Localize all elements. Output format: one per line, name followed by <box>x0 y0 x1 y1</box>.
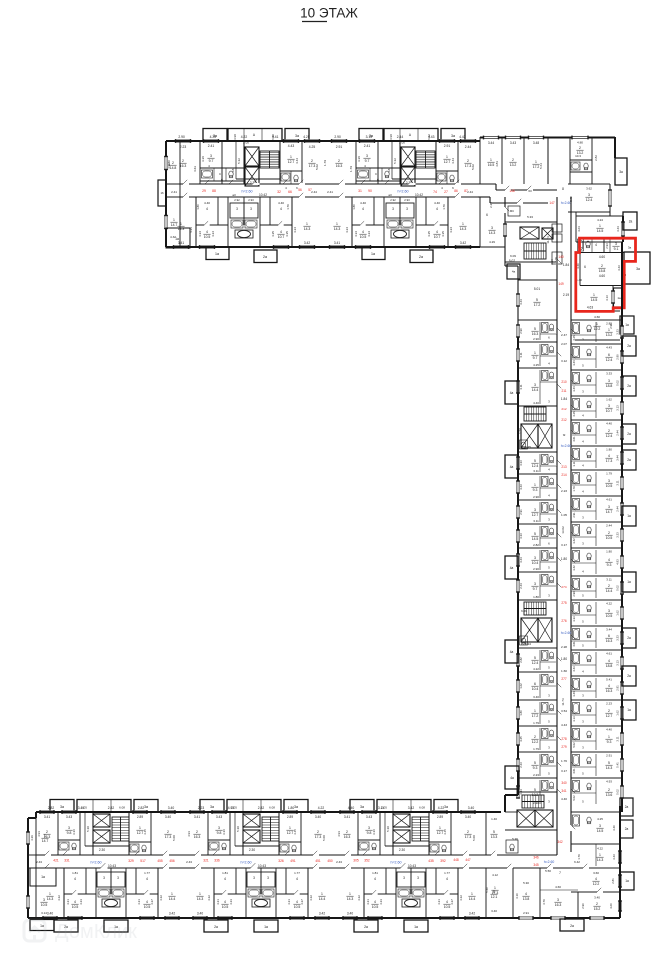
svg-text:12.2: 12.2 <box>594 327 601 331</box>
svg-text:2.91: 2.91 <box>444 144 451 148</box>
svg-text:14.3: 14.3 <box>489 231 496 235</box>
svg-text:3.36: 3.36 <box>372 829 376 835</box>
svg-text:9.3: 9.3 <box>533 488 538 492</box>
svg-text:2: 2 <box>467 159 469 163</box>
svg-text:1: 1 <box>289 826 291 830</box>
svg-text:2.44: 2.44 <box>606 524 612 528</box>
svg-text:1а: 1а <box>215 252 219 256</box>
svg-text:4: 4 <box>224 877 226 881</box>
svg-text:3: 3 <box>267 876 269 880</box>
svg-text:2: 2 <box>182 159 184 163</box>
svg-text:2.23: 2.23 <box>533 773 539 777</box>
svg-text:3.40: 3.40 <box>197 912 203 916</box>
svg-text:2.89: 2.89 <box>287 815 293 819</box>
svg-text:1: 1 <box>336 222 338 226</box>
svg-text:2.92: 2.92 <box>234 198 240 202</box>
svg-text:4.93: 4.93 <box>187 831 191 837</box>
svg-text:2а: 2а <box>627 458 631 462</box>
svg-text:4.40: 4.40 <box>204 201 210 205</box>
svg-text:4.45: 4.45 <box>443 829 447 835</box>
svg-text:2.91: 2.91 <box>606 754 612 758</box>
svg-text:4а: 4а <box>510 650 514 654</box>
svg-text:4.45: 4.45 <box>293 829 297 835</box>
svg-text:4.93: 4.93 <box>616 559 620 565</box>
svg-text:4.93: 4.93 <box>337 831 341 837</box>
svg-text:210: 210 <box>561 380 567 384</box>
svg-text:4.93: 4.93 <box>228 806 235 810</box>
svg-text:1: 1 <box>596 322 598 326</box>
svg-text:5: 5 <box>534 532 536 536</box>
svg-text:3: 3 <box>366 154 368 158</box>
svg-text:9.7: 9.7 <box>533 587 538 591</box>
svg-text:2а: 2а <box>627 636 631 640</box>
svg-text:6: 6 <box>377 178 379 182</box>
svg-text:3.44: 3.44 <box>572 360 576 366</box>
svg-text:16.3: 16.3 <box>336 164 343 168</box>
svg-text:14.5: 14.5 <box>532 537 539 541</box>
svg-text:4: 4 <box>446 900 448 904</box>
svg-text:4.34: 4.34 <box>354 231 358 237</box>
svg-text:3а: 3а <box>144 805 148 809</box>
svg-text:5.41: 5.41 <box>272 135 279 139</box>
svg-text:4.40: 4.40 <box>561 797 567 801</box>
svg-text:29: 29 <box>202 189 206 193</box>
svg-text:2.47: 2.47 <box>561 333 567 337</box>
svg-text:2.90: 2.90 <box>616 354 620 360</box>
svg-text:17.2: 17.2 <box>532 714 539 718</box>
svg-text:2.16: 2.16 <box>550 259 554 265</box>
svg-text:4.22: 4.22 <box>309 895 313 901</box>
svg-text:h=2.60: h=2.60 <box>390 861 401 865</box>
svg-text:1.79: 1.79 <box>286 204 290 210</box>
svg-text:4: 4 <box>146 900 148 904</box>
svg-text:3: 3 <box>534 508 536 512</box>
svg-text:4: 4 <box>280 230 282 234</box>
svg-text:16.3: 16.3 <box>532 332 539 336</box>
svg-text:2.44: 2.44 <box>467 190 473 194</box>
svg-text:5.40: 5.40 <box>485 887 489 893</box>
svg-text:3.42: 3.42 <box>460 241 466 245</box>
svg-text:1: 1 <box>535 160 537 164</box>
svg-text:1: 1 <box>171 892 173 896</box>
svg-text:3.42: 3.42 <box>469 912 475 916</box>
svg-text:2.44: 2.44 <box>616 506 620 512</box>
svg-text:455: 455 <box>157 859 163 863</box>
svg-text:12.1: 12.1 <box>491 895 498 899</box>
svg-text:3.33: 3.33 <box>616 329 620 335</box>
svg-text:3: 3 <box>534 383 536 387</box>
svg-text:3.11: 3.11 <box>606 578 612 582</box>
svg-text:2: 2 <box>596 902 598 906</box>
svg-text:3: 3 <box>608 505 610 509</box>
svg-text:4.60: 4.60 <box>599 274 605 278</box>
svg-text:4.25: 4.25 <box>427 231 431 237</box>
svg-text:2.41: 2.41 <box>171 190 177 194</box>
svg-text:1.80: 1.80 <box>196 204 200 210</box>
svg-text:3.44: 3.44 <box>488 141 494 145</box>
svg-text:4.61: 4.61 <box>606 498 612 502</box>
svg-text:5: 5 <box>536 298 538 302</box>
svg-text:4.22: 4.22 <box>318 806 325 810</box>
svg-text:4: 4 <box>362 207 364 211</box>
svg-text:1а: 1а <box>371 252 375 256</box>
svg-text:276: 276 <box>561 619 567 623</box>
svg-text:4.61: 4.61 <box>193 166 197 172</box>
svg-text:10.4: 10.4 <box>532 561 539 565</box>
svg-text:5.41: 5.41 <box>616 762 620 768</box>
svg-text:4.93: 4.93 <box>606 780 612 784</box>
svg-text:3: 3 <box>218 826 220 830</box>
svg-text:5.34: 5.34 <box>525 642 531 646</box>
svg-text:3.44: 3.44 <box>616 455 620 461</box>
svg-text:3.41: 3.41 <box>334 241 340 245</box>
svg-text:10.43: 10.43 <box>258 864 266 868</box>
svg-text:2: 2 <box>608 531 610 535</box>
svg-text:14.7: 14.7 <box>42 839 49 843</box>
svg-text:1.60: 1.60 <box>561 669 567 673</box>
svg-text:2а: 2а <box>627 344 631 348</box>
svg-text:3.11: 3.11 <box>572 461 576 467</box>
svg-text:5.32: 5.32 <box>393 158 397 164</box>
svg-text:3.79: 3.79 <box>542 899 546 905</box>
svg-text:4: 4 <box>595 877 597 881</box>
svg-text:4.24: 4.24 <box>293 227 297 233</box>
svg-text:18.8: 18.8 <box>606 384 613 388</box>
svg-text:1.79: 1.79 <box>533 721 539 725</box>
svg-text:4.34: 4.34 <box>198 231 202 237</box>
svg-text:4.40: 4.40 <box>360 201 366 205</box>
svg-text:10.7: 10.7 <box>434 235 441 239</box>
svg-text:4: 4 <box>74 877 76 881</box>
svg-text:2.28: 2.28 <box>561 645 567 649</box>
svg-text:2.19: 2.19 <box>563 293 569 297</box>
svg-text:5: 5 <box>534 656 536 660</box>
svg-text:2.82: 2.82 <box>606 322 612 326</box>
svg-text:10.5: 10.5 <box>204 235 211 239</box>
svg-text:342: 342 <box>557 840 563 844</box>
svg-text:4.23: 4.23 <box>379 899 383 905</box>
svg-text:4.22: 4.22 <box>597 847 603 851</box>
svg-text:2.91: 2.91 <box>572 512 576 518</box>
svg-text:1: 1 <box>306 222 308 226</box>
svg-text:4а: 4а <box>510 776 514 780</box>
svg-text:9.7: 9.7 <box>533 356 538 360</box>
svg-text:16.5: 16.5 <box>488 163 495 167</box>
svg-text:4: 4 <box>146 877 148 881</box>
svg-text:3.40: 3.40 <box>468 806 475 810</box>
svg-text:12.2: 12.2 <box>532 740 539 744</box>
svg-text:4: 4 <box>280 207 282 211</box>
svg-text:2а: 2а <box>627 674 631 678</box>
svg-text:4.44: 4.44 <box>295 158 299 164</box>
svg-text:2а: 2а <box>627 432 631 436</box>
svg-text:12.4: 12.4 <box>606 358 613 362</box>
svg-text:4.61: 4.61 <box>572 436 576 442</box>
svg-text:3.12: 3.12 <box>561 359 567 363</box>
svg-text:4.23: 4.23 <box>229 899 233 905</box>
svg-text:2.90: 2.90 <box>572 591 576 597</box>
svg-text:6.08: 6.08 <box>269 806 275 810</box>
svg-text:3.41: 3.41 <box>44 815 50 819</box>
svg-text:2.89: 2.89 <box>137 815 143 819</box>
svg-text:147: 147 <box>549 201 555 205</box>
svg-text:336: 336 <box>214 859 220 863</box>
svg-text:10.5: 10.5 <box>41 903 48 907</box>
svg-text:1: 1 <box>173 218 175 222</box>
svg-text:h=2.60: h=2.60 <box>241 190 252 194</box>
svg-text:16.3: 16.3 <box>555 903 562 907</box>
svg-text:4.25: 4.25 <box>572 411 576 417</box>
svg-text:1.62: 1.62 <box>616 710 620 716</box>
svg-text:6: 6 <box>486 213 488 217</box>
svg-text:5.32: 5.32 <box>237 158 241 164</box>
svg-text:5.00: 5.00 <box>172 835 176 841</box>
svg-text:3.13: 3.13 <box>366 135 373 139</box>
svg-text:352: 352 <box>364 859 370 863</box>
svg-text:13.2: 13.2 <box>606 333 613 337</box>
svg-text:5: 5 <box>534 761 536 765</box>
svg-text:2а: 2а <box>570 924 574 928</box>
svg-text:3.33: 3.33 <box>606 372 612 376</box>
svg-text:3: 3 <box>608 404 610 408</box>
svg-text:4.22: 4.22 <box>207 895 211 901</box>
svg-text:3: 3 <box>608 609 610 613</box>
svg-text:12.2: 12.2 <box>593 882 600 886</box>
svg-text:1.62: 1.62 <box>616 610 620 616</box>
svg-text:3.17: 3.17 <box>561 769 567 773</box>
svg-text:2.91: 2.91 <box>523 911 529 915</box>
svg-text:14.5: 14.5 <box>597 829 604 833</box>
svg-text:2.82: 2.82 <box>108 806 115 810</box>
svg-text:3.41: 3.41 <box>194 815 200 819</box>
svg-text:h=2.60: h=2.60 <box>561 444 572 448</box>
svg-text:3.40: 3.40 <box>47 912 53 916</box>
svg-text:6.08: 6.08 <box>119 806 125 810</box>
svg-text:2.90: 2.90 <box>178 135 185 139</box>
svg-text:3.41: 3.41 <box>344 815 350 819</box>
svg-text:4.24: 4.24 <box>367 231 371 237</box>
svg-text:2: 2 <box>601 264 603 268</box>
svg-text:3.90: 3.90 <box>389 134 393 140</box>
svg-text:32: 32 <box>277 190 281 194</box>
svg-text:2.90: 2.90 <box>581 903 585 909</box>
svg-text:3.11: 3.11 <box>533 469 539 473</box>
svg-text:3.40: 3.40 <box>491 909 497 913</box>
svg-text:4.61: 4.61 <box>572 768 576 774</box>
svg-text:5.01: 5.01 <box>534 287 540 291</box>
svg-text:3.33: 3.33 <box>616 532 620 538</box>
svg-text:1: 1 <box>599 224 601 228</box>
svg-text:274: 274 <box>561 585 566 589</box>
svg-text:5.64: 5.64 <box>539 163 543 169</box>
svg-text:14.3: 14.3 <box>334 227 341 231</box>
svg-text:14.3: 14.3 <box>304 227 311 231</box>
svg-text:14.5: 14.5 <box>591 298 598 302</box>
svg-text:14.4: 14.4 <box>469 897 476 901</box>
svg-text:6: 6 <box>608 634 610 638</box>
svg-text:2.93: 2.93 <box>404 198 410 202</box>
svg-text:4: 4 <box>206 207 208 211</box>
svg-text:10.5: 10.5 <box>360 235 367 239</box>
svg-text:2.82: 2.82 <box>533 543 539 547</box>
svg-text:491: 491 <box>290 859 296 863</box>
svg-text:3.43: 3.43 <box>510 141 516 145</box>
svg-text:3.36: 3.36 <box>222 829 226 835</box>
svg-text:С: С <box>375 172 377 176</box>
svg-text:13.6: 13.6 <box>606 793 613 797</box>
svg-text:4.23: 4.23 <box>79 899 83 905</box>
svg-text:2.90: 2.90 <box>533 337 539 341</box>
svg-text:16.3: 16.3 <box>606 689 613 693</box>
svg-text:4: 4 <box>362 230 364 234</box>
svg-text:4: 4 <box>525 892 527 896</box>
svg-text:12.4: 12.4 <box>606 434 613 438</box>
svg-text:3: 3 <box>253 876 255 880</box>
svg-text:3.11: 3.11 <box>616 736 620 742</box>
svg-text:3.42: 3.42 <box>304 241 310 245</box>
svg-text:4.83: 4.83 <box>495 161 499 167</box>
svg-text:1.80: 1.80 <box>288 806 295 810</box>
svg-text:10.5: 10.5 <box>222 905 229 909</box>
svg-text:5.02: 5.02 <box>471 164 475 170</box>
svg-text:2.90: 2.90 <box>533 495 539 499</box>
svg-text:148: 148 <box>509 189 515 193</box>
svg-text:4.61: 4.61 <box>606 652 612 656</box>
svg-text:3: 3 <box>406 207 408 211</box>
svg-text:3.13: 3.13 <box>572 716 576 722</box>
svg-text:17.3: 17.3 <box>465 835 472 839</box>
svg-text:4.60: 4.60 <box>555 885 561 889</box>
svg-text:9.8: 9.8 <box>367 831 372 835</box>
svg-text:1: 1 <box>199 892 201 896</box>
svg-text:1: 1 <box>490 158 492 162</box>
svg-text:3.62: 3.62 <box>586 187 592 191</box>
svg-text:10.5: 10.5 <box>606 614 613 618</box>
svg-text:1а: 1а <box>625 323 629 327</box>
svg-text:3.43: 3.43 <box>617 265 621 271</box>
svg-text:277: 277 <box>561 677 567 681</box>
svg-text:2.30: 2.30 <box>99 848 105 852</box>
svg-text:3а: 3а <box>451 134 455 138</box>
svg-text:11.73: 11.73 <box>561 698 565 706</box>
svg-text:6: 6 <box>534 682 536 686</box>
svg-text:3а: 3а <box>619 170 623 174</box>
svg-text:14.7: 14.7 <box>171 223 178 227</box>
svg-text:3.33: 3.33 <box>616 635 620 641</box>
svg-text:13.8: 13.8 <box>523 897 530 901</box>
svg-text:5.02: 5.02 <box>572 795 576 801</box>
svg-text:2.23: 2.23 <box>198 806 205 810</box>
svg-text:1.79: 1.79 <box>533 747 539 751</box>
svg-text:14.3: 14.3 <box>47 897 54 901</box>
svg-text:4: 4 <box>608 558 610 562</box>
svg-text:4.21: 4.21 <box>437 899 441 905</box>
svg-text:4.40: 4.40 <box>533 401 539 405</box>
svg-text:2.90: 2.90 <box>533 567 539 571</box>
svg-text:3.36: 3.36 <box>357 156 361 162</box>
svg-text:4: 4 <box>446 877 448 881</box>
svg-text:3.40: 3.40 <box>165 815 171 819</box>
svg-text:4.40: 4.40 <box>434 201 440 205</box>
svg-text:9.8: 9.8 <box>67 831 72 835</box>
svg-text:212: 212 <box>561 407 566 411</box>
svg-text:4.60: 4.60 <box>609 903 613 909</box>
svg-text:3: 3 <box>250 207 252 211</box>
svg-text:4.40: 4.40 <box>606 422 612 426</box>
svg-text:5.02: 5.02 <box>572 742 576 748</box>
svg-text:3: 3 <box>491 226 493 230</box>
svg-text:10.43: 10.43 <box>108 864 116 868</box>
svg-text:5: 5 <box>534 459 536 463</box>
svg-text:4.64: 4.64 <box>577 226 581 232</box>
svg-text:1.77: 1.77 <box>294 871 300 875</box>
svg-text:3.54: 3.54 <box>561 709 567 713</box>
svg-text:4.21: 4.21 <box>366 899 370 905</box>
svg-text:4.25: 4.25 <box>210 135 217 139</box>
svg-text:3.44: 3.44 <box>606 628 612 632</box>
svg-text:2.91: 2.91 <box>336 145 343 149</box>
svg-text:МС: МС <box>510 209 514 213</box>
svg-text:6: 6 <box>608 353 610 357</box>
svg-text:1.82: 1.82 <box>387 167 391 173</box>
svg-text:2.44: 2.44 <box>311 190 317 194</box>
svg-text:1.81: 1.81 <box>72 871 78 875</box>
svg-text:4а: 4а <box>512 270 516 274</box>
svg-text:4: 4 <box>74 900 76 904</box>
svg-text:1.79: 1.79 <box>349 166 353 172</box>
svg-text:2: 2 <box>579 146 581 150</box>
svg-text:4.43: 4.43 <box>561 723 567 727</box>
svg-text:2: 2 <box>338 159 340 163</box>
svg-text:4.43: 4.43 <box>428 135 435 139</box>
svg-text:3: 3 <box>608 379 610 383</box>
svg-text:2: 2 <box>317 830 319 834</box>
svg-text:16.3: 16.3 <box>344 835 351 839</box>
svg-text:2.82: 2.82 <box>258 806 265 810</box>
svg-text:4.27: 4.27 <box>150 899 154 905</box>
svg-text:4: 4 <box>374 877 376 881</box>
svg-text:15.8: 15.8 <box>599 269 606 273</box>
svg-text:3.42: 3.42 <box>319 912 325 916</box>
svg-text:4а: 4а <box>510 391 514 395</box>
svg-text:3а: 3а <box>360 805 364 809</box>
svg-text:17.3: 17.3 <box>606 459 613 463</box>
svg-text:3: 3 <box>417 876 419 880</box>
svg-text:10.5: 10.5 <box>606 484 613 488</box>
svg-text:14.4: 14.4 <box>319 897 326 901</box>
svg-text:4.12: 4.12 <box>492 873 498 877</box>
svg-text:18.8: 18.8 <box>606 664 613 668</box>
svg-text:4.22: 4.22 <box>533 667 539 671</box>
svg-text:5.30: 5.30 <box>86 826 90 832</box>
svg-text:14.3: 14.3 <box>347 897 354 901</box>
svg-text:4.25: 4.25 <box>303 135 310 139</box>
svg-text:2: 2 <box>467 830 469 834</box>
svg-text:3.40: 3.40 <box>465 815 471 819</box>
svg-text:1.82: 1.82 <box>231 167 235 173</box>
svg-text:1.62: 1.62 <box>606 398 612 402</box>
svg-text:66: 66 <box>288 190 292 194</box>
svg-text:3.43: 3.43 <box>612 854 616 860</box>
svg-text:3: 3 <box>103 876 105 880</box>
svg-text:12.7: 12.7 <box>532 513 539 517</box>
svg-text:4: 4 <box>608 454 610 458</box>
svg-text:451: 451 <box>315 859 321 863</box>
svg-text:9.3: 9.3 <box>607 740 612 744</box>
svg-text:3: 3 <box>608 479 610 483</box>
svg-text:1а: 1а <box>175 237 179 241</box>
svg-text:5: 5 <box>534 327 536 331</box>
